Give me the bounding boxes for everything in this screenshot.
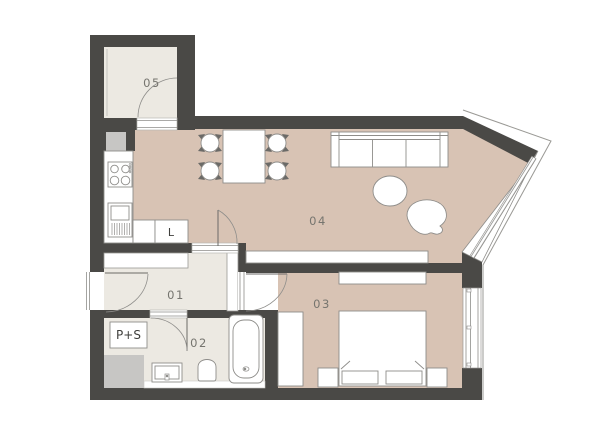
storage-floor (104, 47, 177, 118)
coffee-table (373, 176, 407, 206)
bedroom-wardrobe-top (339, 272, 426, 284)
dining-chair (198, 162, 222, 180)
wall-storage-right (177, 35, 195, 130)
hallway-wardrobe (227, 247, 238, 311)
dining-chair (265, 162, 289, 180)
dining-chair (198, 134, 222, 152)
wall-left-upper (90, 35, 104, 272)
pillow (342, 371, 378, 384)
room-label-02: 02 (190, 336, 208, 350)
wall-top (177, 116, 463, 129)
floor-plan-drawing: 01 02 03 04 05 L P+S (0, 0, 600, 443)
bathtub (229, 315, 263, 383)
room-label-01: 01 (167, 288, 185, 302)
dining-chair (265, 134, 289, 152)
washbasin (152, 363, 182, 382)
wall-bedroom-right-lower (462, 368, 482, 392)
dining-table (223, 130, 265, 183)
bedroom-wardrobe-left (278, 312, 303, 386)
bed (339, 311, 426, 386)
shaft-bottom (104, 355, 144, 388)
sideboard (246, 251, 428, 263)
wall-left-lower (90, 310, 104, 400)
nightstand-left (318, 368, 338, 387)
oven (108, 203, 132, 237)
room-label-05: 05 (143, 76, 161, 90)
toilet (198, 360, 216, 382)
fridge-label: L (168, 226, 175, 239)
wall-bathroom-bedroom (265, 318, 278, 388)
wall-kitchen-hall (104, 243, 192, 253)
pillow (386, 371, 422, 384)
wall-hall-bathroom-left (104, 310, 150, 318)
wall-storage-bottom-stub (104, 118, 137, 130)
bedroom-window (463, 288, 481, 368)
stove (108, 162, 132, 187)
room-label-04: 04 (309, 214, 327, 228)
shaft-top (106, 132, 126, 151)
kitchen-counter-return (133, 220, 155, 243)
wall-bottom (90, 388, 482, 400)
nightstand-right (427, 368, 447, 387)
floor-plan-canvas: 01 02 03 04 05 L P+S (0, 0, 600, 443)
hallway-closet (104, 253, 188, 268)
washer-dryer-label: P+S (116, 328, 141, 342)
sofa (331, 132, 448, 167)
wall-living-bedroom (238, 263, 466, 273)
room-label-03: 03 (313, 297, 331, 311)
